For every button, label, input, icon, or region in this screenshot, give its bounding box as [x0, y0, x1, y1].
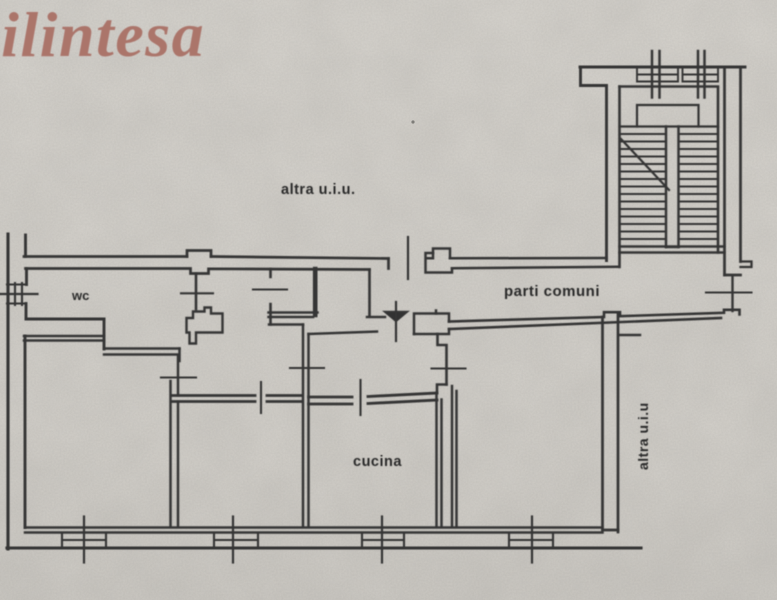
svg-text:cucina: cucina [353, 454, 402, 470]
svg-text:wc: wc [71, 288, 89, 303]
svg-text:altra u.i.u.: altra u.i.u. [281, 182, 356, 198]
svg-text:altra u.i.u: altra u.i.u [635, 402, 651, 470]
svg-text:parti comuni: parti comuni [504, 283, 600, 300]
svg-text:Silintesa: Silintesa [0, 0, 205, 70]
